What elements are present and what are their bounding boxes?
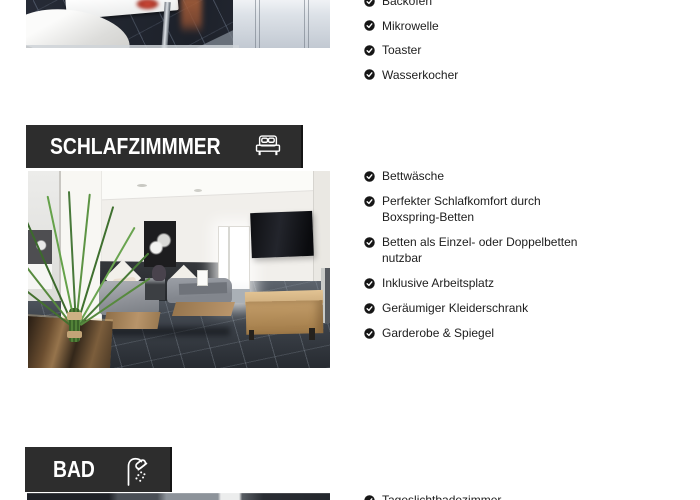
bed-icon — [253, 134, 283, 159]
bedroom-photo — [28, 171, 330, 368]
check-icon — [364, 495, 375, 500]
amenity-label: Geräumiger Kleiderschrank — [382, 300, 528, 316]
amenity-label: Toaster — [382, 42, 421, 58]
check-icon — [364, 0, 375, 7]
bathroom-amenities-list: Tageslichtbadezimmer — [364, 492, 501, 500]
bathroom-section-title: BAD — [53, 456, 95, 483]
check-icon — [364, 45, 375, 56]
bedroom-photo-tv — [251, 211, 315, 259]
bedroom-section-header: SCHLAFZIMMMER — [26, 125, 303, 168]
kitchen-photo-chair-bg — [181, 0, 202, 34]
check-icon — [364, 196, 375, 207]
amenity-item: Inklusive Arbeitsplatz — [364, 275, 577, 291]
amenity-item: Mikrowelle — [364, 18, 458, 34]
bedroom-amenities-list: Bettwäsche Perfekter Schlafkomfort durch… — [364, 168, 577, 350]
check-icon — [364, 278, 375, 289]
check-icon — [364, 20, 375, 31]
amenity-item: Backofen — [364, 0, 458, 9]
amenity-item: Wasserkocher — [364, 67, 458, 83]
amenities-page: Backofen Mikrowelle Toaster Wasserkocher… — [0, 0, 700, 500]
amenity-label: Betten als Einzel- oder Doppelbetten nut… — [382, 234, 577, 266]
check-icon — [364, 328, 375, 339]
bedroom-photo-wall-art — [144, 221, 176, 266]
kitchen-photo-cabinets — [233, 0, 330, 48]
amenity-label: Bettwäsche — [382, 168, 444, 184]
amenity-label: Inklusive Arbeitsplatz — [382, 275, 494, 291]
amenity-item: Tageslichtbadezimmer — [364, 492, 501, 500]
amenity-label: Garderobe & Spiegel — [382, 325, 494, 341]
amenity-label: Perfekter Schlafkomfort durch Boxspring-… — [382, 193, 541, 225]
amenity-label: Wasserkocher — [382, 67, 458, 83]
amenity-item: Geräumiger Kleiderschrank — [364, 300, 577, 316]
bedroom-section-title: SCHLAFZIMMMER — [50, 133, 221, 160]
bedroom-photo-lamp — [152, 265, 166, 282]
shower-icon — [121, 454, 151, 486]
kitchen-amenities-list: Backofen Mikrowelle Toaster Wasserkocher — [364, 0, 458, 91]
amenity-item: Perfekter Schlafkomfort durch Boxspring-… — [364, 193, 577, 225]
bathroom-section-header: BAD — [25, 447, 172, 492]
check-icon — [364, 171, 375, 182]
check-icon — [364, 303, 375, 314]
kitchen-photo-edge — [26, 45, 239, 48]
amenity-label: Backofen — [382, 0, 432, 9]
bedroom-photo-plant — [48, 210, 101, 342]
amenity-item: Bettwäsche — [364, 168, 577, 184]
bathroom-photo — [27, 493, 330, 500]
kitchen-photo — [26, 0, 330, 48]
check-icon — [364, 237, 375, 248]
kitchen-photo-flower — [135, 0, 159, 10]
amenity-item: Betten als Einzel- oder Doppelbetten nut… — [364, 234, 577, 266]
check-icon — [364, 69, 375, 80]
amenity-item: Garderobe & Spiegel — [364, 325, 577, 341]
amenity-item: Toaster — [364, 42, 458, 58]
amenity-label: Mikrowelle — [382, 18, 439, 34]
amenity-label: Tageslichtbadezimmer — [382, 492, 501, 500]
